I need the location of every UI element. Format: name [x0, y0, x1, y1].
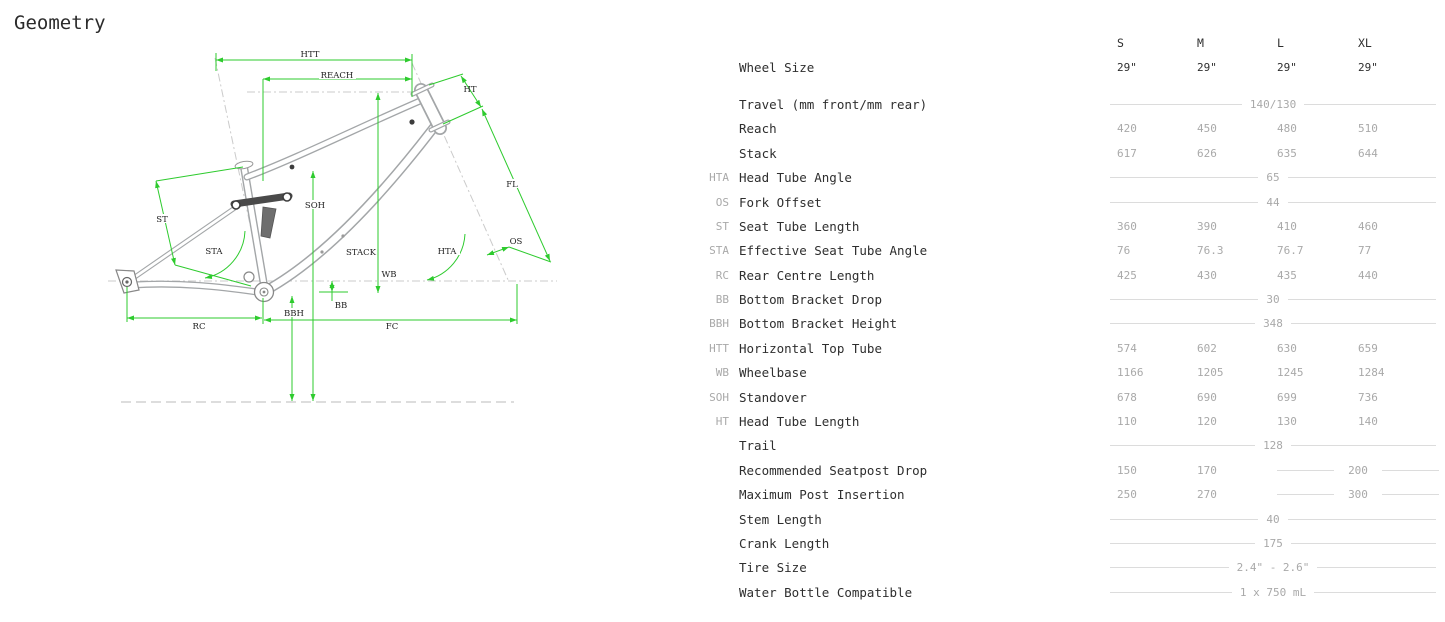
label-fc: FC	[386, 322, 398, 332]
table-row-wheelbase: WB Wheelbase 1166 1205 1245 1284	[703, 361, 1436, 385]
cell-value: 659	[1358, 342, 1378, 355]
cell-value: 450	[1197, 122, 1217, 135]
row-label: Horizontal Top Tube	[739, 341, 882, 356]
row-label: Bottom Bracket Height	[739, 316, 897, 331]
row-abbr: RC	[703, 269, 729, 282]
row-label: Stack	[739, 146, 777, 161]
cell-value: 644	[1358, 147, 1378, 160]
label-sta: STA	[205, 247, 223, 257]
row-label: Head Tube Length	[739, 414, 859, 429]
label-stack: STACK	[346, 248, 377, 258]
table-row-rear-centre-length: RC Rear Centre Length 425 430 435 440	[703, 263, 1436, 287]
row-label: Standover	[739, 390, 807, 405]
cell-value: 110	[1117, 415, 1137, 428]
cell-value-span: 348	[1255, 317, 1291, 330]
cell-value: 29"	[1197, 61, 1217, 74]
cell-value: 736	[1358, 391, 1378, 404]
label-os: OS	[510, 237, 523, 247]
table-row-wheel-size: Wheel Size 29" 29" 29" 29"	[703, 55, 1436, 79]
label-htt: HTT	[301, 50, 320, 60]
row-abbr: OS	[703, 196, 729, 209]
cell-value: 440	[1358, 269, 1378, 282]
label-reach: REACH	[321, 71, 354, 81]
cell-value-span: 44	[1258, 196, 1287, 209]
cell-value: 1245	[1277, 366, 1304, 379]
table-row-water-bottle-compatible: Water Bottle Compatible 1 x 750 mL	[703, 580, 1436, 604]
label-soh: SOH	[305, 201, 325, 211]
table-row-standover: SOH Standover 678 690 699 736	[703, 385, 1436, 409]
size-header: S	[1117, 36, 1124, 50]
cell-value-span: 140/130	[1242, 98, 1304, 111]
cell-value: 76	[1117, 244, 1130, 257]
cell-value-span: 1 x 750 mL	[1232, 586, 1314, 599]
construction-lines	[108, 58, 557, 402]
cell-value-span: 175	[1255, 537, 1291, 550]
row-abbr: BBH	[703, 317, 729, 330]
table-row-trail: Trail 128	[703, 434, 1436, 458]
row-label: Tire Size	[739, 560, 807, 575]
row-abbr: HTT	[703, 342, 729, 355]
cell-value: 678	[1117, 391, 1137, 404]
label-rc: RC	[193, 322, 206, 332]
cell-value: 410	[1277, 220, 1297, 233]
label-bb: BB	[335, 301, 348, 311]
table-row-tire-size: Tire Size 2.4" - 2.6"	[703, 556, 1436, 580]
cell-value-span: 40	[1258, 513, 1287, 526]
cell-value: 1284	[1358, 366, 1385, 379]
cell-value: 630	[1277, 342, 1297, 355]
row-label: Wheel Size	[739, 60, 814, 75]
table-row-head-tube-length: HT Head Tube Length 110 120 130 140	[703, 409, 1436, 433]
cell-value: 140	[1358, 415, 1378, 428]
cell-value: 510	[1358, 122, 1378, 135]
row-abbr: SOH	[703, 391, 729, 404]
cell-value: 76.3	[1197, 244, 1224, 257]
cell-value: 77	[1358, 244, 1371, 257]
row-label: Stem Length	[739, 512, 822, 527]
bike-geometry-diagram: HTT REACH HT FL ST SOH STA STACK HTA OS …	[0, 0, 600, 420]
cell-value: 1205	[1197, 366, 1224, 379]
size-header: XL	[1358, 36, 1372, 50]
dim-hta-arc	[427, 234, 465, 280]
cell-value: 699	[1277, 391, 1297, 404]
cell-value: 617	[1117, 147, 1137, 160]
row-label: Bottom Bracket Drop	[739, 292, 882, 307]
row-label: Crank Length	[739, 536, 829, 551]
row-label: Fork Offset	[739, 195, 822, 210]
table-row-bottom-bracket-drop: BB Bottom Bracket Drop 30	[703, 287, 1436, 311]
label-wb: WB	[382, 270, 397, 280]
cell-value: 635	[1277, 147, 1297, 160]
cell-value: 29"	[1277, 61, 1297, 74]
row-abbr: HT	[703, 415, 729, 428]
cell-value: 435	[1277, 269, 1297, 282]
label-ht: HT	[463, 85, 476, 95]
row-label: Head Tube Angle	[739, 170, 852, 185]
rear-shock	[234, 196, 289, 204]
label-bbh: BBH	[284, 309, 304, 319]
cell-value: 390	[1197, 220, 1217, 233]
cell-value: 250	[1117, 488, 1137, 501]
suspension-link	[261, 207, 276, 238]
cell-value-span: 30	[1258, 293, 1287, 306]
table-row-travel: Travel (mm front/mm rear) 140/130	[703, 92, 1436, 116]
cell-value: 460	[1358, 220, 1378, 233]
row-label: Wheelbase	[739, 365, 807, 380]
table-row-stack: Stack 617 626 635 644	[703, 141, 1436, 165]
table-row-effective-seat-tube-angle: STA Effective Seat Tube Angle 76 76.3 76…	[703, 239, 1436, 263]
cell-value-span: 128	[1255, 439, 1291, 452]
table-row-head-tube-angle: HTA Head Tube Angle 65	[703, 165, 1436, 189]
dim-os	[487, 247, 509, 255]
table-row-crank-length: Crank Length 175	[703, 531, 1436, 555]
frame-drawing	[116, 85, 448, 302]
cell-value: 29"	[1117, 61, 1137, 74]
table-row-seat-tube-length: ST Seat Tube Length 360 390 410 460	[703, 214, 1436, 238]
cell-value: 425	[1117, 269, 1137, 282]
cell-value-span: 65	[1258, 171, 1287, 184]
cell-value: 29"	[1358, 61, 1378, 74]
row-label: Maximum Post Insertion	[739, 487, 905, 502]
cell-value: 626	[1197, 147, 1217, 160]
table-row-horizontal-top-tube: HTT Horizontal Top Tube 574 602 630 659	[703, 336, 1436, 360]
cell-value: 574	[1117, 342, 1137, 355]
cell-value: 120	[1197, 415, 1217, 428]
cell-value: 270	[1197, 488, 1217, 501]
row-label: Effective Seat Tube Angle	[739, 243, 927, 258]
size-header: M	[1197, 36, 1204, 50]
cell-value: 430	[1197, 269, 1217, 282]
row-abbr: ST	[703, 220, 729, 233]
row-label: Rear Centre Length	[739, 268, 874, 283]
cell-value: 420	[1117, 122, 1137, 135]
row-label: Travel (mm front/mm rear)	[739, 97, 927, 112]
table-row-maximum-post-insertion: Maximum Post Insertion 250 270 300	[703, 483, 1436, 507]
label-fl: FL	[506, 180, 518, 190]
label-hta: HTA	[438, 247, 458, 257]
cell-value: 360	[1117, 220, 1137, 233]
row-label: Water Bottle Compatible	[739, 585, 912, 600]
size-header-row: S M L XL	[703, 31, 1436, 55]
table-row-bottom-bracket-height: BBH Bottom Bracket Height 348	[703, 312, 1436, 336]
row-label: Recommended Seatpost Drop	[739, 463, 927, 478]
row-abbr: STA	[703, 244, 729, 257]
cell-value: 130	[1277, 415, 1297, 428]
row-label: Seat Tube Length	[739, 219, 859, 234]
table-row-fork-offset: OS Fork Offset 44	[703, 190, 1436, 214]
row-label: Trail	[739, 438, 777, 453]
table-row-reach: Reach 420 450 480 510	[703, 117, 1436, 141]
cell-value: 480	[1277, 122, 1297, 135]
row-label: Reach	[739, 121, 777, 136]
cell-value-span: 200	[1334, 464, 1382, 477]
cell-value: 150	[1117, 464, 1137, 477]
cell-value: 1166	[1117, 366, 1144, 379]
dimension-lines	[127, 53, 551, 401]
cell-value-span: 2.4" - 2.6"	[1229, 561, 1318, 574]
row-abbr: HTA	[703, 171, 729, 184]
row-abbr: BB	[703, 293, 729, 306]
table-row-stem-length: Stem Length 40	[703, 507, 1436, 531]
geometry-table: S M L XL Wheel Size 29" 29" 29" 29" Trav…	[703, 31, 1436, 604]
table-row-recommended-seatpost-drop: Recommended Seatpost Drop 150 170 200	[703, 458, 1436, 482]
cell-value: 602	[1197, 342, 1217, 355]
cell-value: 76.7	[1277, 244, 1304, 257]
cell-value: 690	[1197, 391, 1217, 404]
size-header: L	[1277, 36, 1284, 50]
label-st: ST	[156, 215, 168, 225]
cell-value-span: 300	[1334, 488, 1382, 501]
row-abbr: WB	[703, 366, 729, 379]
cell-value: 170	[1197, 464, 1217, 477]
